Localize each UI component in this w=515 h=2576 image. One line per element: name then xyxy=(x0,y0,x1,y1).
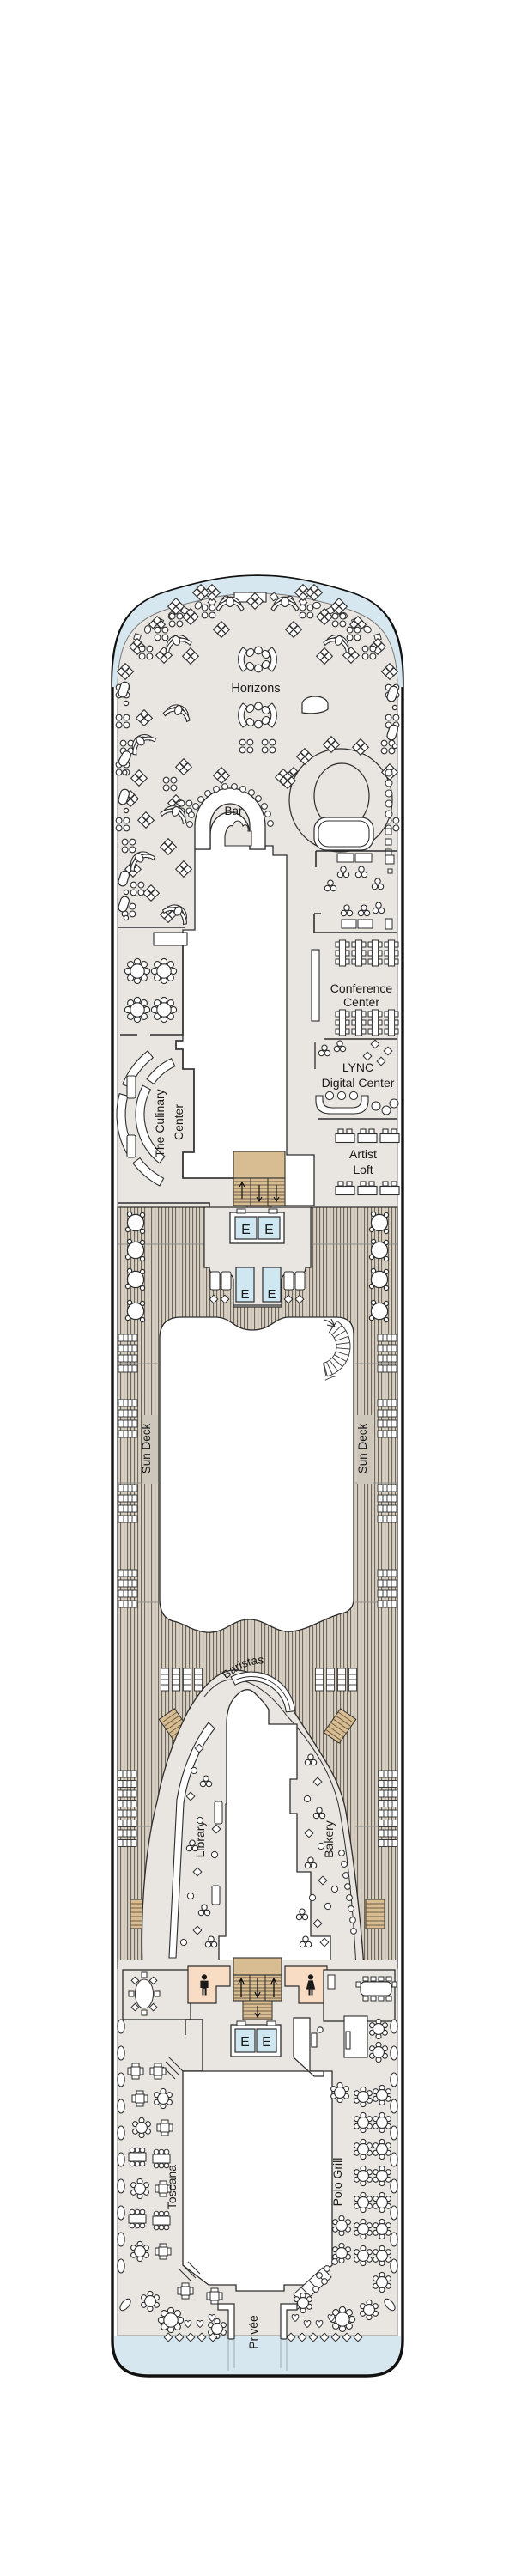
svg-text:Center: Center xyxy=(343,995,379,1009)
svg-text:E: E xyxy=(262,2035,271,2050)
svg-text:Library: Library xyxy=(193,1821,207,1858)
svg-text:Polo Grill: Polo Grill xyxy=(330,2158,344,2207)
svg-text:E: E xyxy=(240,1287,249,1302)
svg-text:Sun Deck: Sun Deck xyxy=(140,1423,153,1473)
svg-text:Sun Deck: Sun Deck xyxy=(356,1423,369,1473)
svg-text:E: E xyxy=(240,2035,250,2050)
svg-text:Horizons: Horizons xyxy=(231,682,280,696)
svg-text:The Culinary: The Culinary xyxy=(153,1089,167,1157)
svg-text:Bakery: Bakery xyxy=(322,1820,336,1858)
svg-text:E: E xyxy=(241,1223,251,1237)
svg-text:E: E xyxy=(267,1287,276,1302)
svg-text:Conference: Conference xyxy=(330,981,393,995)
svg-text:Artist: Artist xyxy=(349,1147,377,1161)
svg-text:Digital Center: Digital Center xyxy=(322,1076,395,1090)
svg-text:Privée: Privée xyxy=(246,2315,260,2349)
svg-text:Center: Center xyxy=(172,1104,185,1140)
svg-text:Loft: Loft xyxy=(353,1163,373,1176)
svg-text:Bar: Bar xyxy=(224,805,243,817)
svg-text:Toscana: Toscana xyxy=(165,2165,179,2209)
svg-text:E: E xyxy=(264,1223,274,1237)
svg-text:LYNC: LYNC xyxy=(342,1060,373,1074)
